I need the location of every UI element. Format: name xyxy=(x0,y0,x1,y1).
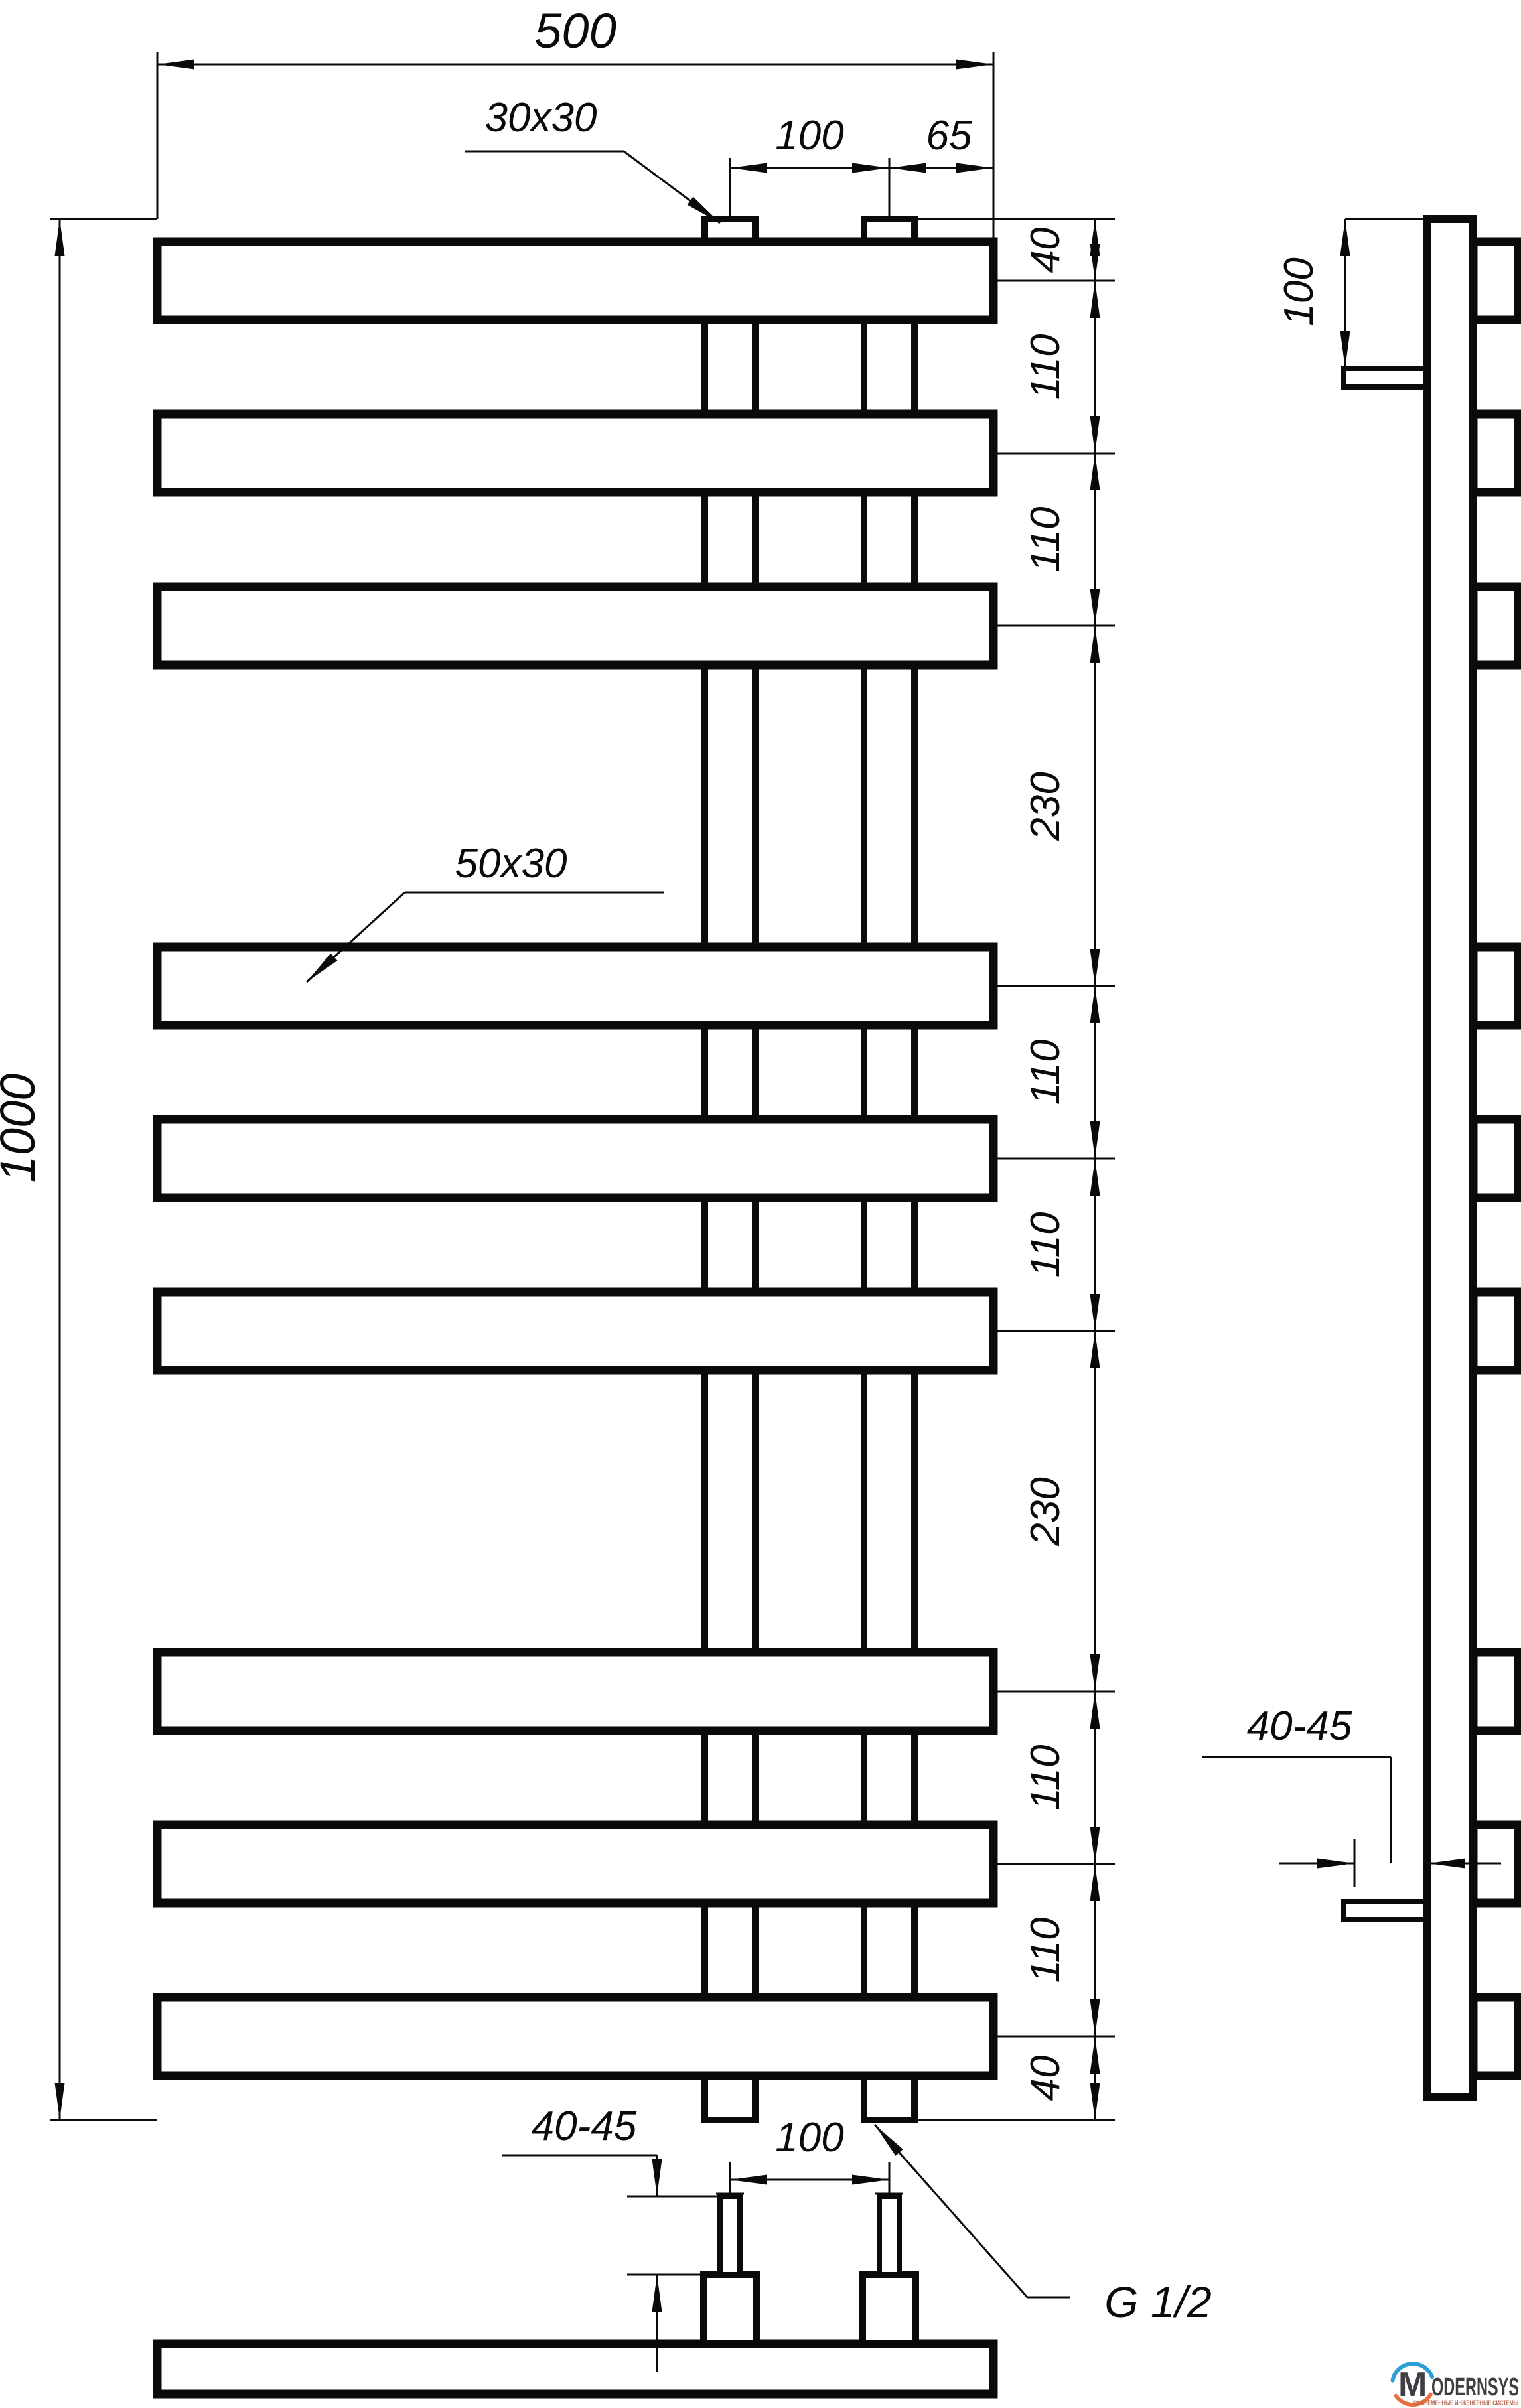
bar-end xyxy=(1473,1652,1518,1731)
thread-text: G 1/2 xyxy=(1104,2277,1211,2326)
chain-label: 110 xyxy=(1023,1212,1068,1278)
chain-label: 110 xyxy=(1023,334,1068,400)
connection-pipe xyxy=(720,2196,740,2275)
dim-bottom-40-45: 40-45 xyxy=(502,2103,720,2372)
dim-width-label: 500 xyxy=(534,3,616,58)
label-riser-profile: 30x30 xyxy=(465,95,720,223)
label-thread: G 1/2 xyxy=(875,2125,1212,2326)
front-view xyxy=(157,219,993,2120)
dim-bottom-100-label: 100 xyxy=(775,2115,843,2160)
wall-bracket-top xyxy=(1344,368,1427,387)
logo-monogram: M xyxy=(1398,2366,1427,2404)
chain-label: 230 xyxy=(1023,1477,1068,1546)
towel-radiator-drawing: 500 1000 100 65 30x30 50x30 xyxy=(0,0,1521,2408)
logo-name: ODERNSYS xyxy=(1431,2373,1519,2401)
dim-riser-spacing: 100 65 xyxy=(730,113,993,216)
dim-side-40-45-label: 40-45 xyxy=(1247,1703,1352,1749)
bar-end xyxy=(1473,1292,1518,1370)
bar-end xyxy=(1473,1997,1518,2076)
bottom-view: 100 40-45 G 1/2 xyxy=(157,2103,1212,2394)
towel-bar xyxy=(157,1119,993,1198)
chain-label: 110 xyxy=(1023,1918,1068,1983)
dim-riser-offset-label: 65 xyxy=(926,113,972,159)
riser-profile xyxy=(1427,219,1473,2097)
dim-height-1000: 1000 xyxy=(0,219,157,2120)
riser-profile-text: 30x30 xyxy=(485,95,597,141)
chain-label: 110 xyxy=(1023,1745,1068,1811)
bar-end xyxy=(1473,947,1518,1025)
side-view: 100 40-45 xyxy=(1202,219,1518,2097)
dim-riser-spacing-label: 100 xyxy=(775,113,843,159)
bar-end xyxy=(1473,587,1518,665)
connection-pipe xyxy=(879,2196,899,2275)
chain-label: 110 xyxy=(1023,1040,1068,1105)
towel-bar xyxy=(157,414,993,492)
wall-bracket-bottom xyxy=(1344,1902,1427,1920)
towel-bar xyxy=(157,587,993,665)
chain-label: 40 xyxy=(1023,2056,1068,2101)
bar-end xyxy=(1473,242,1518,320)
dim-side-100: 100 xyxy=(1276,219,1427,368)
towel-bar xyxy=(157,242,993,320)
bar-profile-text: 50x30 xyxy=(455,841,567,886)
logo-tagline: СОВРЕМЕННЫЕ ИНЖЕНЕРНЫЕ СИСТЕМЫ xyxy=(1413,2399,1518,2407)
chain-label: 110 xyxy=(1023,507,1068,573)
chain-label: 40 xyxy=(1023,228,1068,273)
dim-height-label: 1000 xyxy=(0,1074,45,1183)
towel-bar xyxy=(157,1997,993,2076)
connection-socket xyxy=(863,2275,916,2344)
chain-label: 230 xyxy=(1023,772,1068,841)
logo-modernsys: M ODERNSYS СОВРЕМЕННЫЕ ИНЖЕНЕРНЫЕ СИСТЕМ… xyxy=(1393,2364,1520,2407)
dim-bottom-40-45-label: 40-45 xyxy=(532,2103,637,2149)
technical-drawing-sheet: 500 1000 100 65 30x30 50x30 xyxy=(0,0,1521,2408)
bottom-bar xyxy=(157,2344,993,2394)
dim-bottom-100: 100 xyxy=(730,2115,889,2196)
bar-end xyxy=(1473,1119,1518,1198)
towel-bar xyxy=(157,1825,993,1903)
connection-socket xyxy=(703,2275,757,2344)
bar-end xyxy=(1473,414,1518,492)
dim-side-100-label: 100 xyxy=(1276,257,1322,326)
towel-bar xyxy=(157,947,993,1025)
towel-bar xyxy=(157,1652,993,1731)
towel-bar xyxy=(157,1292,993,1370)
